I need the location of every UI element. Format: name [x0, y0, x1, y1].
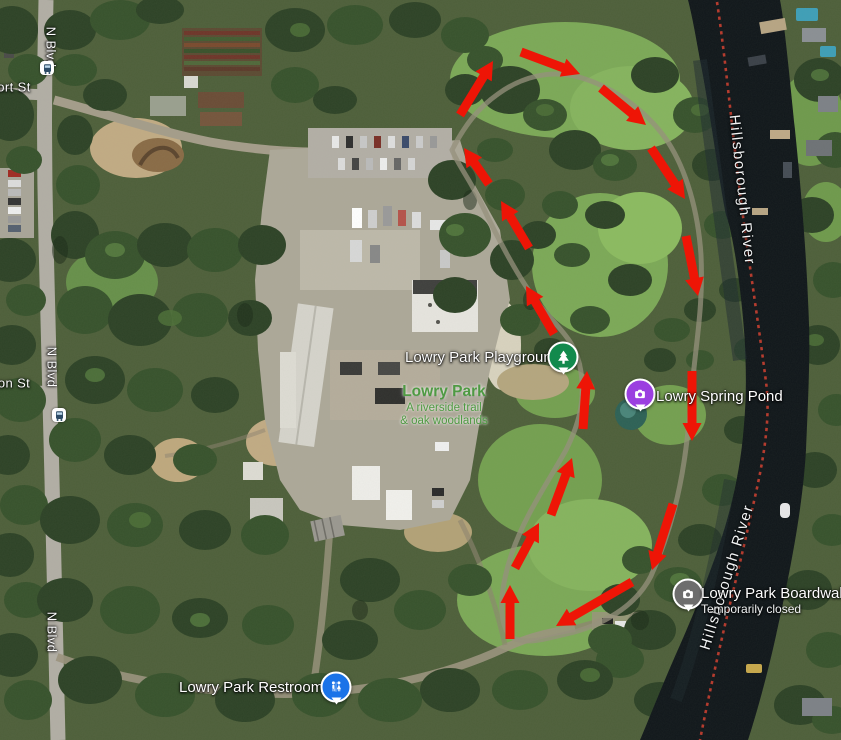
- park-label-lowry-park[interactable]: Lowry Park A riverside trail & oak woodl…: [396, 383, 492, 427]
- boardwalk-pin[interactable]: [673, 579, 704, 610]
- street-label-ort-st: ort St: [0, 80, 31, 95]
- poi-label-playground[interactable]: Lowry Park Playground: [405, 349, 560, 366]
- park-subtitle-2: & oak woodlands: [396, 415, 492, 427]
- spring-pond-pin[interactable]: [625, 379, 656, 410]
- bus-icon: [41, 62, 54, 75]
- poi-label-spring-pond[interactable]: Lowry Spring Pond: [656, 388, 783, 405]
- park-subtitle-1: A riverside trail: [396, 402, 492, 414]
- poi-label-restrooms[interactable]: Lowry Park Restrooms: [179, 679, 331, 696]
- restroom-icon: [329, 680, 344, 695]
- playground-pin[interactable]: [548, 342, 579, 373]
- restrooms-pin[interactable]: [321, 672, 352, 703]
- camera-icon: [681, 587, 696, 602]
- poi-label-boardwalk[interactable]: Lowry Park Boardwalk: [701, 585, 841, 602]
- street-label-on-st: on St: [0, 376, 30, 391]
- poi-sublabel-boardwalk-status: Temporarily closed: [701, 602, 801, 616]
- map-viewport[interactable]: N Blvd ort St N Blvd on St N Blvd Hillsb…: [0, 0, 841, 740]
- bus-stop-icon[interactable]: [40, 61, 54, 75]
- street-label-n-blvd-bottom: N Blvd: [45, 612, 60, 653]
- bus-stop-icon[interactable]: [52, 408, 66, 422]
- tree-icon: [555, 349, 571, 365]
- street-label-n-blvd-mid: N Blvd: [45, 347, 60, 388]
- bus-icon: [53, 409, 66, 422]
- camera-icon: [633, 387, 648, 402]
- park-title: Lowry Park: [396, 383, 492, 401]
